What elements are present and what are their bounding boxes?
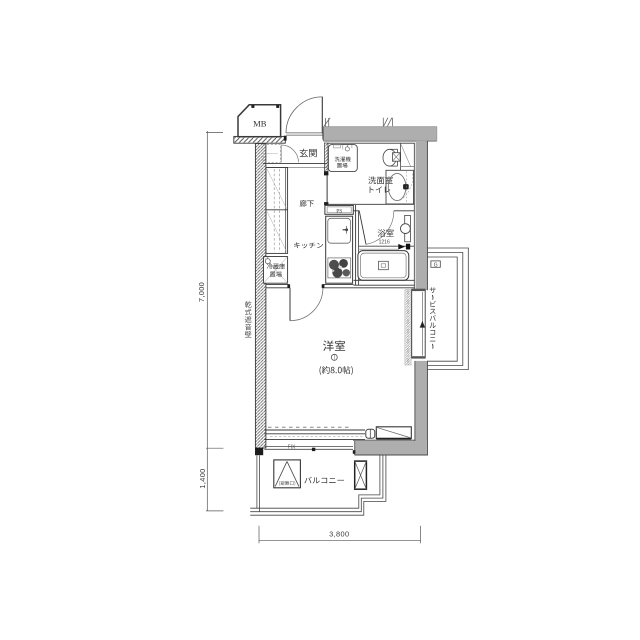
svg-text:1,400: 1,400 — [198, 468, 207, 488]
svg-text:G: G — [434, 262, 438, 268]
svg-text:1216: 1216 — [379, 240, 390, 246]
svg-text:MB: MB — [253, 118, 267, 128]
svg-text:7,000: 7,000 — [197, 282, 206, 302]
svg-text:PS: PS — [336, 209, 342, 215]
svg-text:3,800: 3,800 — [329, 530, 349, 539]
svg-text:FIX: FIX — [288, 444, 296, 450]
